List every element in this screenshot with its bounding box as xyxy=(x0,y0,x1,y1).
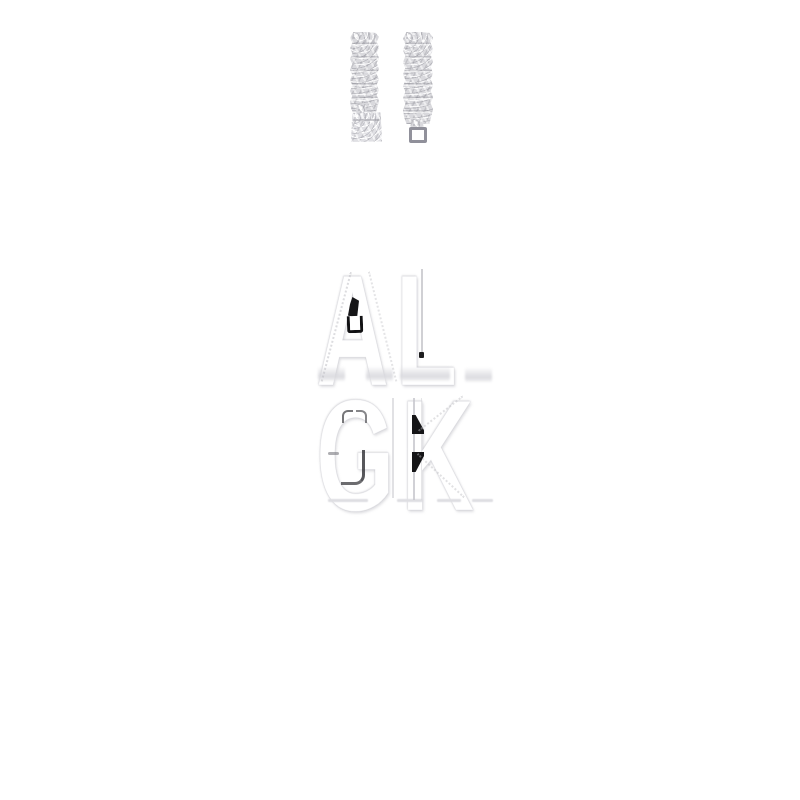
baseline-line-k-right xyxy=(437,499,461,502)
letter-g-crossbar-dash xyxy=(328,452,339,455)
baseline-line-g xyxy=(328,499,368,502)
baseline-line-k-left xyxy=(397,499,423,502)
letter-l-stem-line xyxy=(421,269,423,355)
letter-g-counter-tick-right xyxy=(356,410,367,423)
baseline-smudge-row1-extra xyxy=(465,367,492,382)
chain-strand-right xyxy=(403,32,433,124)
chain-strand-left xyxy=(350,32,379,114)
box-clasp-seam xyxy=(353,119,380,121)
clasp-insert-tab xyxy=(409,127,427,143)
letter-l-stem-dot xyxy=(419,352,424,358)
baseline-smudge-l xyxy=(400,366,450,381)
box-clasp xyxy=(351,112,382,142)
letter-k-stem-line xyxy=(413,398,415,500)
letter-a-counter-box xyxy=(347,316,364,334)
photo-stage: AL GK xyxy=(0,0,800,800)
letter-g-right-edge-line xyxy=(392,398,394,498)
letter-g-bowl-hook xyxy=(341,450,365,485)
baseline-smudge-a-right xyxy=(366,366,393,381)
letter-k-stem-line-2 xyxy=(421,398,422,500)
letter-g-counter-tick-left xyxy=(342,410,353,423)
baseline-line-row2-extra xyxy=(472,499,493,502)
